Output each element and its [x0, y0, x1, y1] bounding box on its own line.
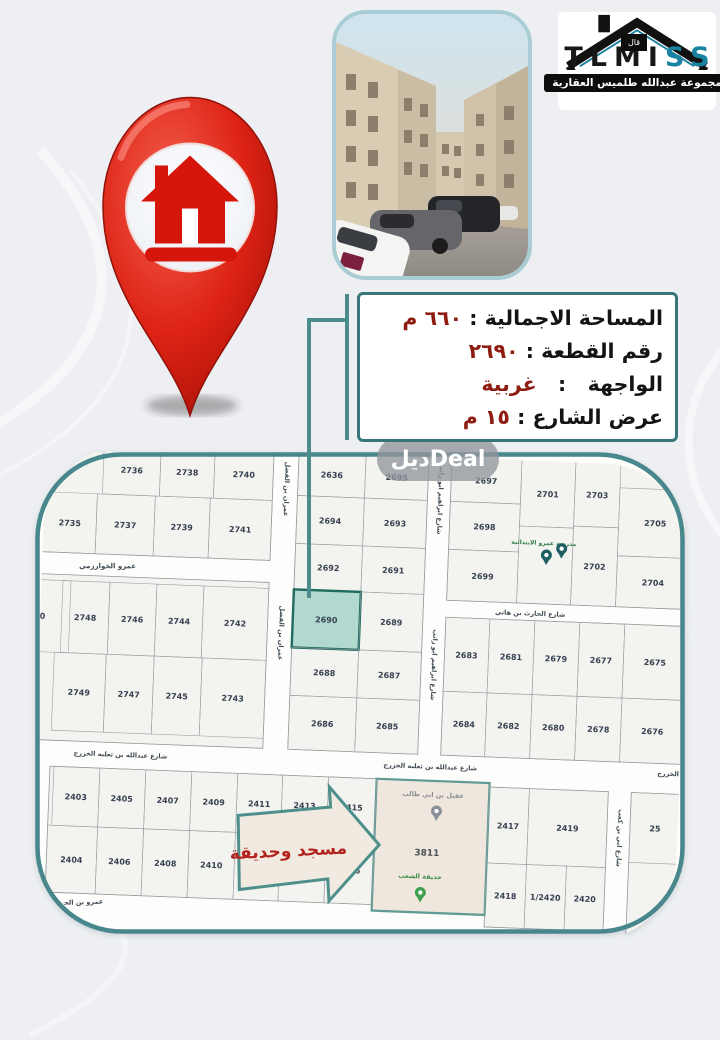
- plot-number: 2677: [590, 656, 613, 666]
- plot-number: 2737: [114, 520, 137, 530]
- plot-number: 2703: [586, 491, 609, 501]
- plot-number: 2409: [202, 798, 225, 808]
- plot-number: 2744: [168, 617, 191, 627]
- plot-number: 2738: [176, 468, 199, 478]
- plot-number: 2681: [500, 652, 523, 662]
- street-label: الخزرج: [657, 769, 679, 778]
- plot-number: 2702: [583, 562, 606, 572]
- plot-number: 2678: [587, 725, 610, 735]
- plot-number: 2690: [315, 615, 338, 625]
- plot-number: 25: [649, 824, 661, 833]
- plot-number: 2406: [108, 857, 131, 867]
- watermark-badge: ديلDeal: [377, 437, 499, 481]
- plot-number: 2739: [170, 523, 193, 533]
- plot-number: 2689: [380, 618, 403, 628]
- plot-number: 2418: [494, 891, 517, 901]
- plot-number: 2682: [497, 721, 520, 731]
- street-label: عمرو الخوارزمي: [79, 562, 136, 570]
- map-block: [441, 617, 685, 764]
- plot-number: 2743: [221, 694, 244, 704]
- poi-label: 3811: [414, 848, 439, 859]
- info-line-plot-number: رقم القطعة : ٢٦٩٠: [366, 339, 663, 363]
- location-pin-house-icon: [95, 86, 285, 424]
- plot-number: 2741: [229, 525, 252, 535]
- plot-number: 2704: [642, 578, 665, 588]
- plot-number: 2419: [556, 824, 579, 834]
- plot-number: 2747: [117, 690, 140, 700]
- plot-number: 2698: [473, 522, 496, 532]
- plot-number: 2701: [536, 490, 559, 500]
- plot-number: 1/2420: [530, 893, 562, 903]
- plot-number: 2740: [232, 470, 255, 480]
- info-line-facade: الواجهة : غربية: [366, 372, 663, 396]
- plot-number: 2675: [644, 658, 667, 668]
- plot-number: 2749: [67, 688, 90, 698]
- mosque-park-block: [372, 779, 490, 915]
- plot-number: 2742: [224, 619, 247, 629]
- parcel-map: 2736273827402735273727392741502748274627…: [35, 452, 685, 934]
- poi-label: حديقة الشعب: [398, 872, 442, 882]
- connector-line-vertical: [307, 318, 311, 598]
- plot-number: 2679: [545, 654, 568, 664]
- plot-number: 2411: [248, 799, 271, 809]
- plot-number: 2688: [313, 668, 336, 678]
- plot-number: 2735: [58, 518, 81, 528]
- plot-number: 2691: [382, 566, 405, 576]
- company-logo: قال TLMISS مجموعة عبدالله طلميس العقارية: [558, 12, 716, 110]
- plot-number: 2687: [378, 671, 401, 681]
- connector-line-horizontal: [307, 318, 349, 322]
- plot-number: 2676: [641, 727, 664, 737]
- plot-number: 2417: [497, 821, 520, 831]
- plot-number: 2748: [74, 613, 97, 623]
- map-block: [484, 787, 608, 931]
- plot-number: 2736: [121, 466, 144, 476]
- plot-number: 2410: [200, 860, 223, 870]
- connector-line-box-edge: [345, 294, 349, 440]
- info-line-street-width: عرض الشارع : ١٥ م: [366, 405, 663, 429]
- plot-number: 2407: [156, 796, 179, 806]
- plot-number: 2404: [60, 855, 83, 865]
- logo-roof-label: قال: [621, 34, 647, 51]
- logo-tagline: مجموعة عبدالله طلميس العقارية: [544, 74, 720, 92]
- plot-number: 2636: [321, 470, 344, 480]
- plot-number: 2699: [471, 572, 494, 582]
- plot-number: 2746: [121, 615, 144, 625]
- plot-number: 2420: [573, 894, 596, 904]
- plot-number: 2408: [154, 859, 177, 869]
- info-line-total-area: المساحة الاجمالية : ٦٦٠ م: [366, 306, 663, 330]
- plot-number: 2693: [384, 519, 407, 529]
- plot-number: 2694: [319, 516, 342, 526]
- plot-number: 2683: [455, 651, 478, 661]
- plot-number: 2685: [376, 722, 399, 732]
- plot-number: 2403: [64, 792, 87, 802]
- plot-number: 2745: [165, 692, 188, 702]
- property-info-box: المساحة الاجمالية : ٦٦٠ م رقم القطعة : ٢…: [357, 292, 678, 442]
- plot-number: 2705: [644, 519, 667, 529]
- plot-number: 2684: [453, 720, 476, 730]
- plot-number: 2686: [311, 719, 334, 729]
- plot-number: 2692: [317, 563, 340, 573]
- plot-number: 2405: [110, 794, 133, 804]
- building-photo: [332, 10, 532, 280]
- plot-number: 2680: [542, 723, 565, 733]
